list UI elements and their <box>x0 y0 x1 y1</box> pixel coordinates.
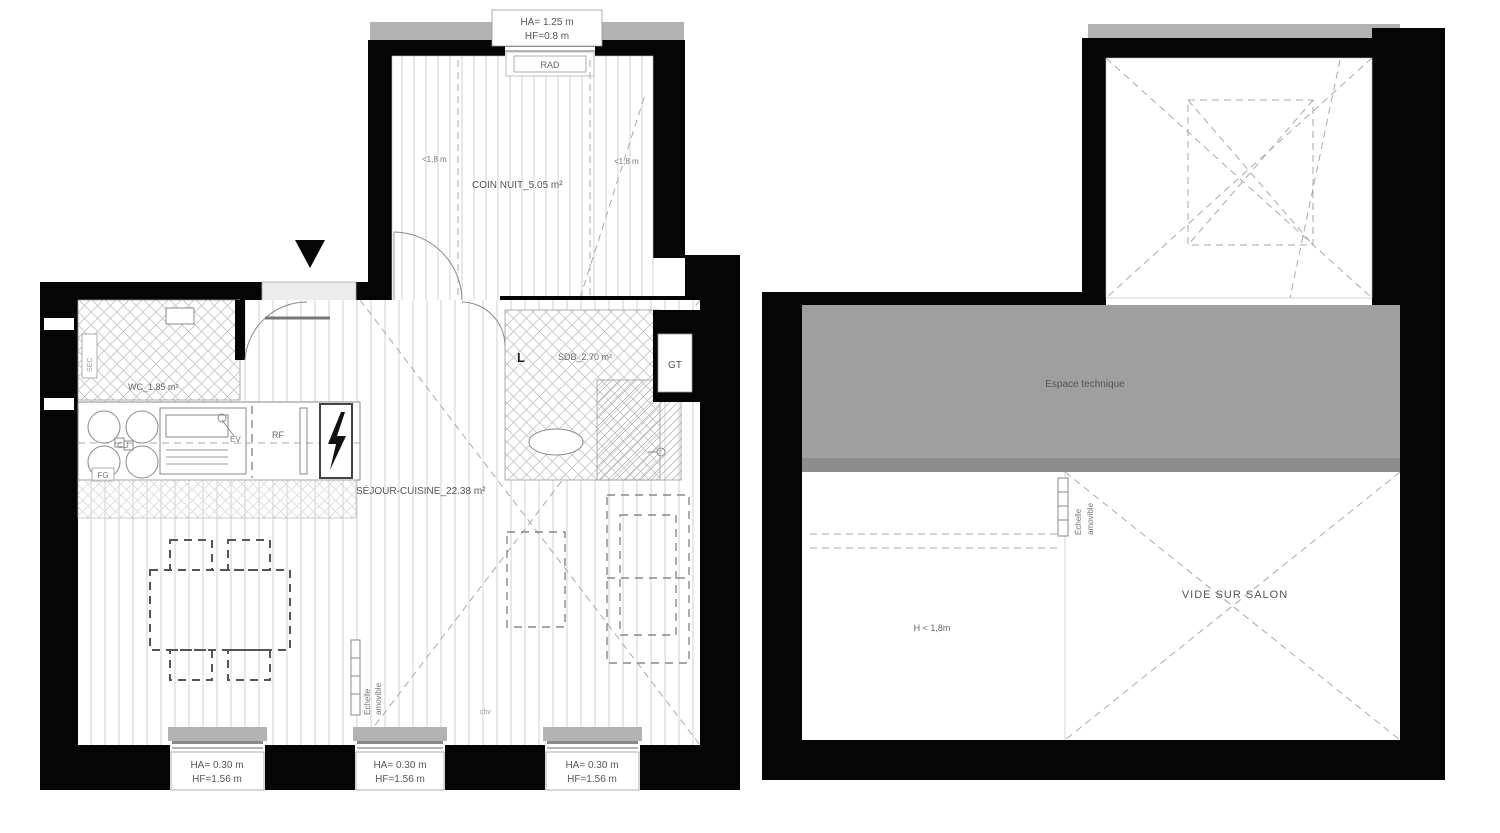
window1-hf: HF=1.56 m <box>192 774 242 785</box>
mez-floor <box>802 472 1400 740</box>
mez-wall-right <box>1400 305 1445 780</box>
left-plan: RAD <1,8 m <1,8 m COIN NUIT_5.05 m² HA= … <box>40 10 740 790</box>
coin-nuit-floor <box>392 56 653 302</box>
mezzanine-interior: Échelle amovible H < 1,8m VIDE SUR SALON <box>802 472 1400 740</box>
mez-ladder-word2: amovible <box>1086 502 1095 535</box>
cu-label: CU <box>117 441 129 450</box>
kitchen: CU FG EV RF <box>78 402 360 518</box>
sec-label: SEC <box>87 358 94 372</box>
mez-ladder-word1: Échelle <box>1074 508 1083 535</box>
window3-hf: HF=1.56 m <box>567 774 617 785</box>
wall-coin-nuit-left <box>368 40 392 302</box>
slope-right-label: <1,8 m <box>614 157 639 166</box>
washbasin-icon <box>529 429 583 455</box>
vide-label: VIDE SUR SALON <box>1182 589 1288 601</box>
ev-label: EV <box>230 435 241 444</box>
wall-bottom-3 <box>445 745 545 790</box>
wc-partition <box>235 300 245 360</box>
height-label: H < 1,8m <box>914 623 951 633</box>
mez-wall-bottom <box>762 740 1445 780</box>
top-room-sill <box>1088 24 1400 40</box>
bottom-window-3: HA= 0.30 m HF=1.56 m <box>543 727 642 790</box>
window-top-label: HA= 1.25 m HF=0.8 m <box>492 10 602 46</box>
mez-wall-left <box>762 292 802 780</box>
radiator-label: RAD <box>540 60 560 70</box>
wall-right <box>700 300 740 790</box>
floorplan-canvas: RAD <1,8 m <1,8 m COIN NUIT_5.05 m² HA= … <box>0 0 1500 833</box>
window3-ha: HA= 0.30 m <box>565 760 618 771</box>
room-coin-nuit: RAD <1,8 m <1,8 m COIN NUIT_5.05 m² HA= … <box>368 10 685 302</box>
wc-label: WC_1.85 m² <box>128 382 179 392</box>
chv-label: chv <box>480 709 491 716</box>
window2-ha: HA= 0.30 m <box>373 760 426 771</box>
slope-left-label: <1,8 m <box>422 155 447 164</box>
top-room-wall-left <box>1082 38 1106 305</box>
bottom-window-1: HA= 0.30 m HF=1.56 m <box>168 727 267 790</box>
toilet-icon <box>166 308 194 324</box>
fg-label: FG <box>97 471 108 480</box>
wall-coin-nuit-right <box>653 40 685 258</box>
wall-bottom-4 <box>640 745 740 790</box>
bottom-window-2: HA= 0.30 m HF=1.56 m <box>353 727 447 790</box>
bottom-windows: HA= 0.30 m HF=1.56 m HA= 0.30 m HF=1.56 … <box>168 727 642 790</box>
wall-bottom-2 <box>265 745 355 790</box>
coin-nuit-label: COIN NUIT_5.05 m² <box>472 180 563 191</box>
sec-box: SEC <box>82 334 97 378</box>
window-sill-top-right <box>598 22 684 40</box>
window2-hf: HF=1.56 m <box>375 774 425 785</box>
window-top-hf: HF=0.8 m <box>525 31 569 42</box>
espace-technique-label: Espace technique <box>1045 379 1125 390</box>
fg-box: FG <box>92 468 114 481</box>
mezzanine-body: Espace technique Échelle amovible <box>762 292 1445 780</box>
ladder-word1: Échelle <box>363 688 372 715</box>
top-room-wall-right <box>1372 28 1445 305</box>
top-room-wall-top <box>1082 38 1402 58</box>
wall-slot-1 <box>44 318 74 330</box>
ladder-word2: amovible <box>374 682 383 715</box>
entrance-threshold <box>262 282 356 302</box>
wall-left <box>40 282 78 790</box>
wall-slot-2 <box>44 398 74 410</box>
wall-bottom-1 <box>40 745 170 790</box>
window-sill-top-left <box>370 22 495 40</box>
gt-shaft: GT <box>653 310 700 402</box>
kitchen-tile-strip <box>78 480 356 518</box>
sdb-label: SDB_2.70 m² <box>558 352 612 362</box>
top-room <box>1082 24 1445 305</box>
ll-label: L <box>517 350 525 365</box>
window1-ha: HA= 0.30 m <box>190 760 243 771</box>
right-plan: Espace technique Échelle amovible <box>762 24 1445 780</box>
gt-label: GT <box>668 360 682 371</box>
entrance-arrow-icon <box>295 240 325 268</box>
rf-label: RF <box>272 430 284 440</box>
window-top-ha: HA= 1.25 m <box>520 17 573 28</box>
sejour-label: SÉJOUR-CUISINE_22.38 m² <box>356 484 486 497</box>
electrical-panel-icon <box>320 404 352 478</box>
espace-technique: Espace technique <box>802 305 1400 472</box>
